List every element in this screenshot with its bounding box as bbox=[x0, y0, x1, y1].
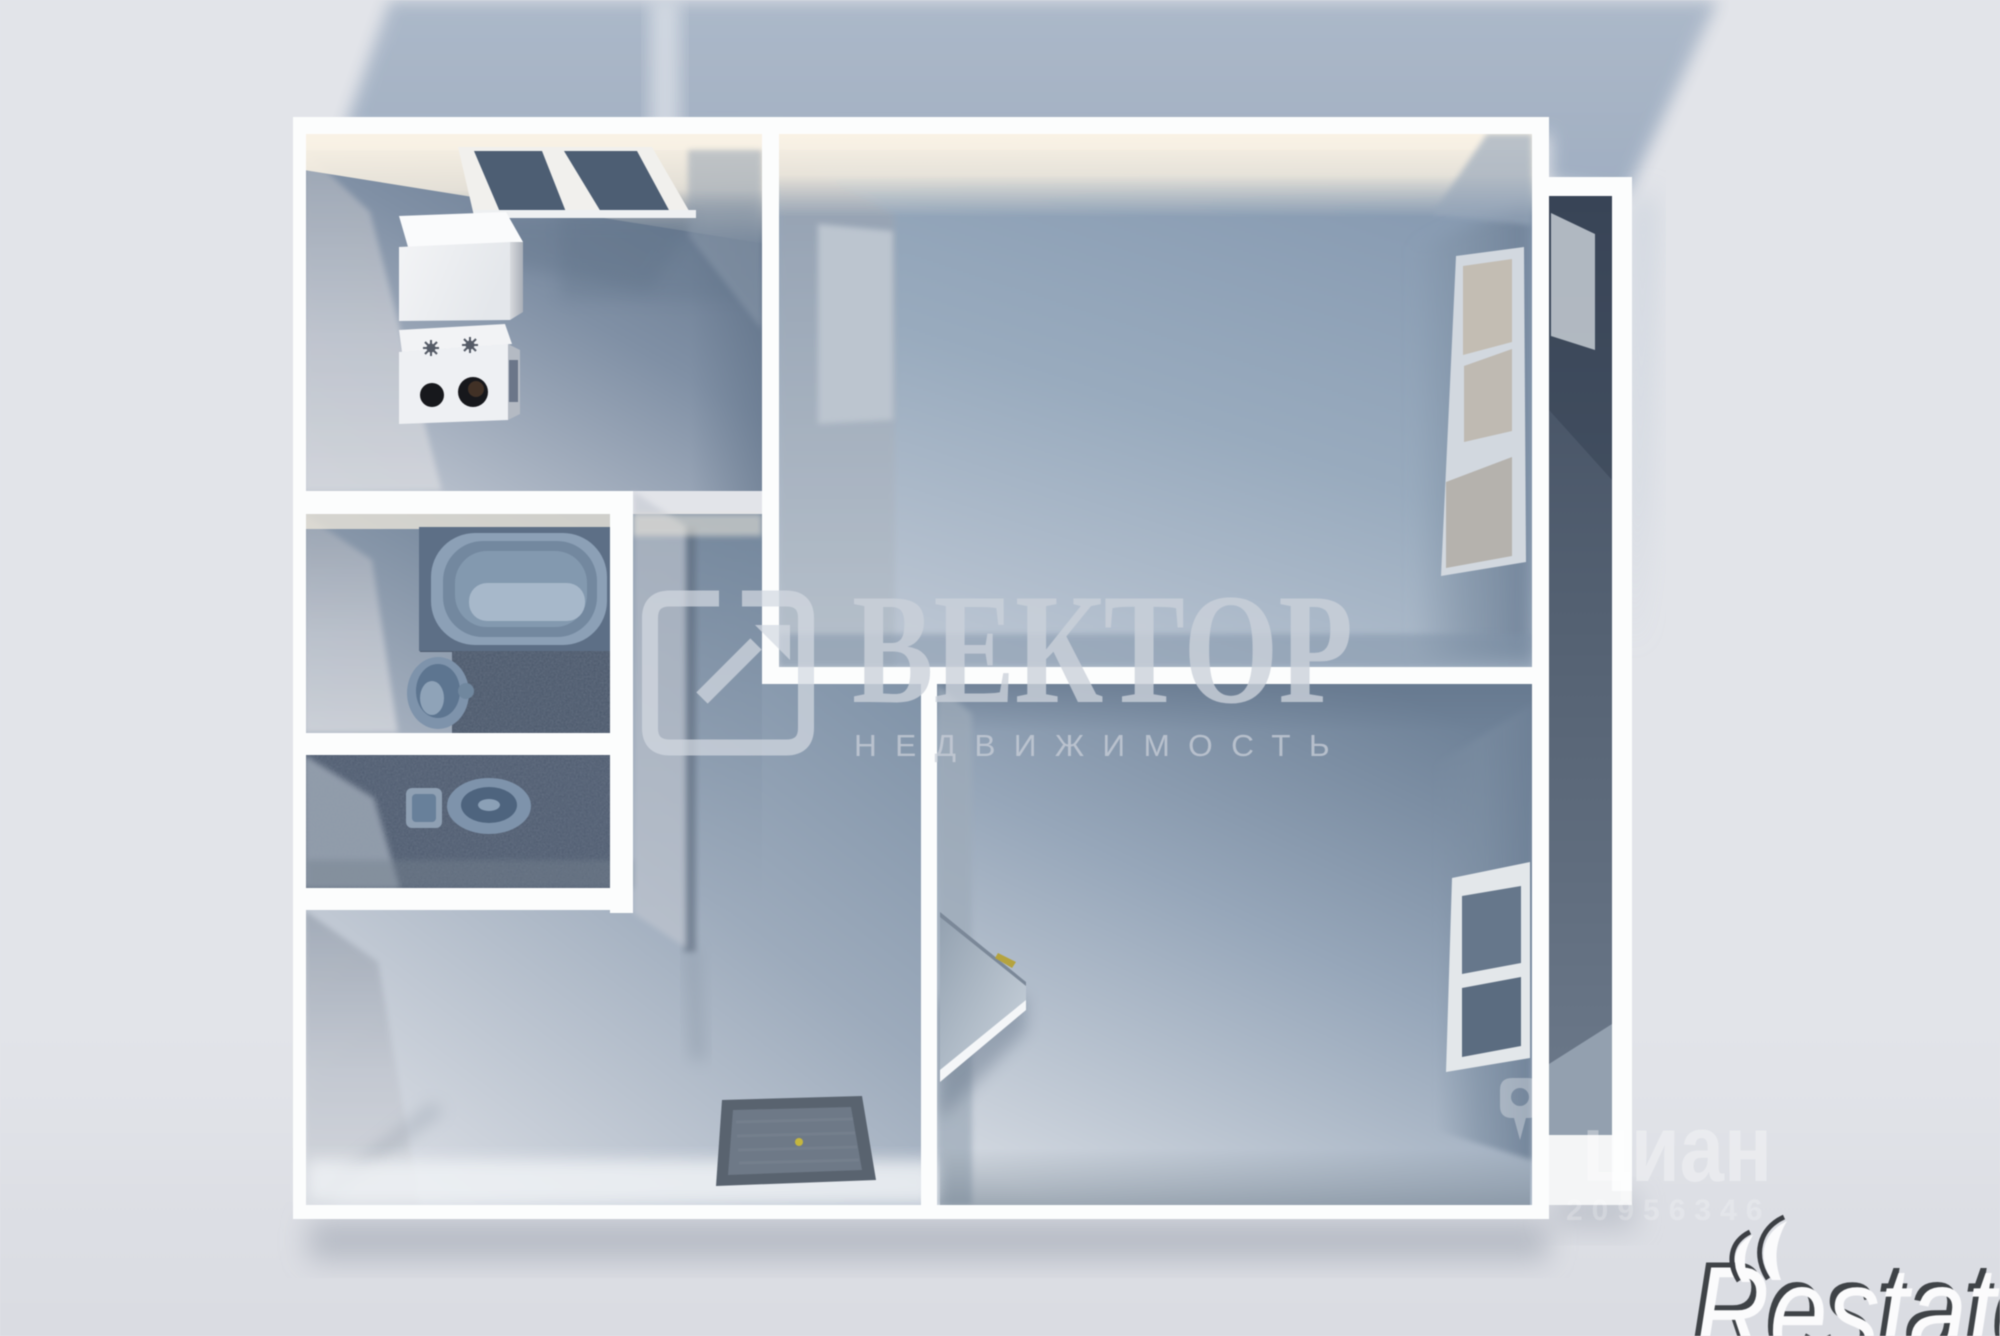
svg-text:ВЕКТОР: ВЕКТОР bbox=[852, 562, 1353, 737]
svg-text:20956346: 20956346 bbox=[1566, 1194, 1771, 1227]
svg-text:циан: циан bbox=[1582, 1095, 1772, 1202]
svg-text:НЕДВИЖИМОСТЬ: НЕДВИЖИМОСТЬ bbox=[854, 728, 1348, 763]
